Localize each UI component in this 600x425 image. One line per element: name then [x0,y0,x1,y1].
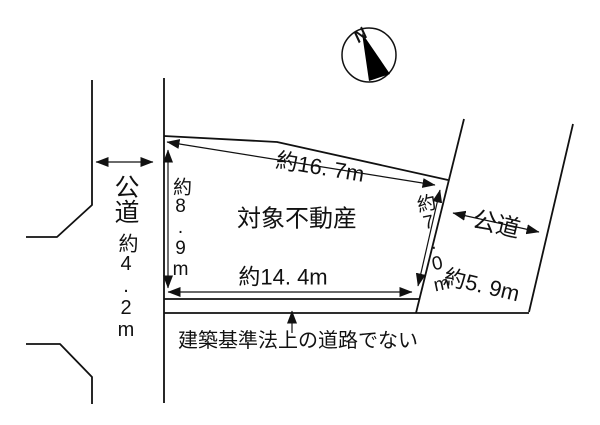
land-plot-diagram: N 公道 約4.2m 約8.9m 約7.0m 約16. 7m 約14. 4m 対… [0,0,600,425]
left-road-name-label: 公道 [112,174,137,224]
compass: N [342,24,396,82]
left-road-lower-boundary [26,344,92,404]
left-edge-dimension-label: 約8.9m [171,177,190,280]
left-road-width-label: 約4.2m [116,233,136,341]
non-road-note: 建築基準法上の道路でない [178,330,418,352]
right-road-name-label: 公道 [455,204,536,248]
bottom-edge-dimension-label: 約14. 4m [238,266,327,291]
right-road-width-label: 約5. 9m [441,265,522,307]
left-road-upper-boundary [26,80,92,237]
property-label: 対象不動産 [237,207,357,234]
